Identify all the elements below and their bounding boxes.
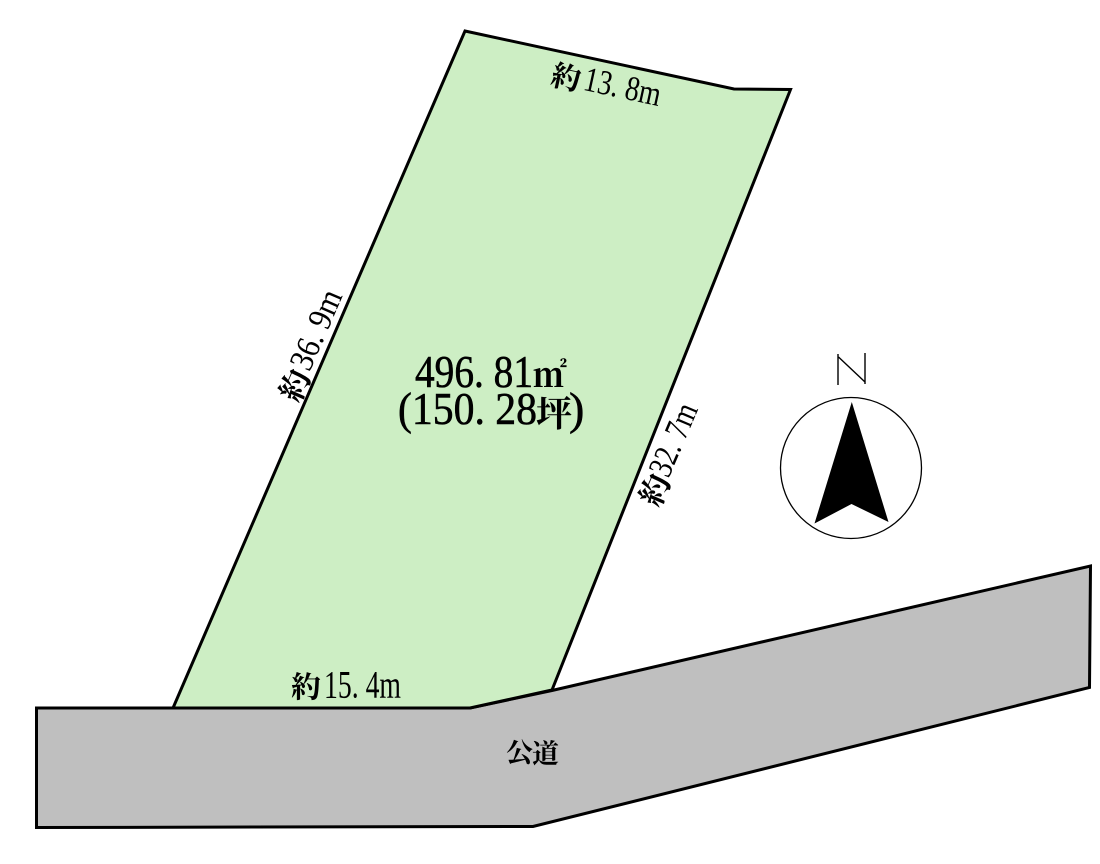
svg-text:(150. 28: (150. 28 xyxy=(398,383,537,434)
svg-text:): ) xyxy=(569,383,584,434)
svg-text:15. 4m: 15. 4m xyxy=(324,664,401,707)
